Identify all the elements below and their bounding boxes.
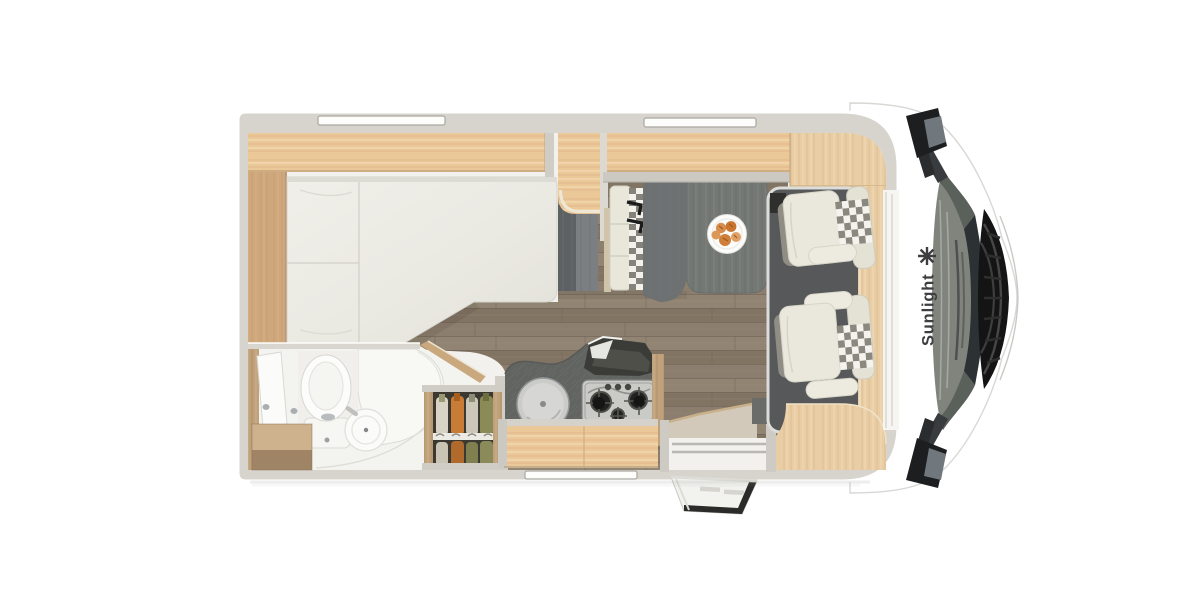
svg-text:Sunlight: Sunlight bbox=[920, 274, 938, 346]
